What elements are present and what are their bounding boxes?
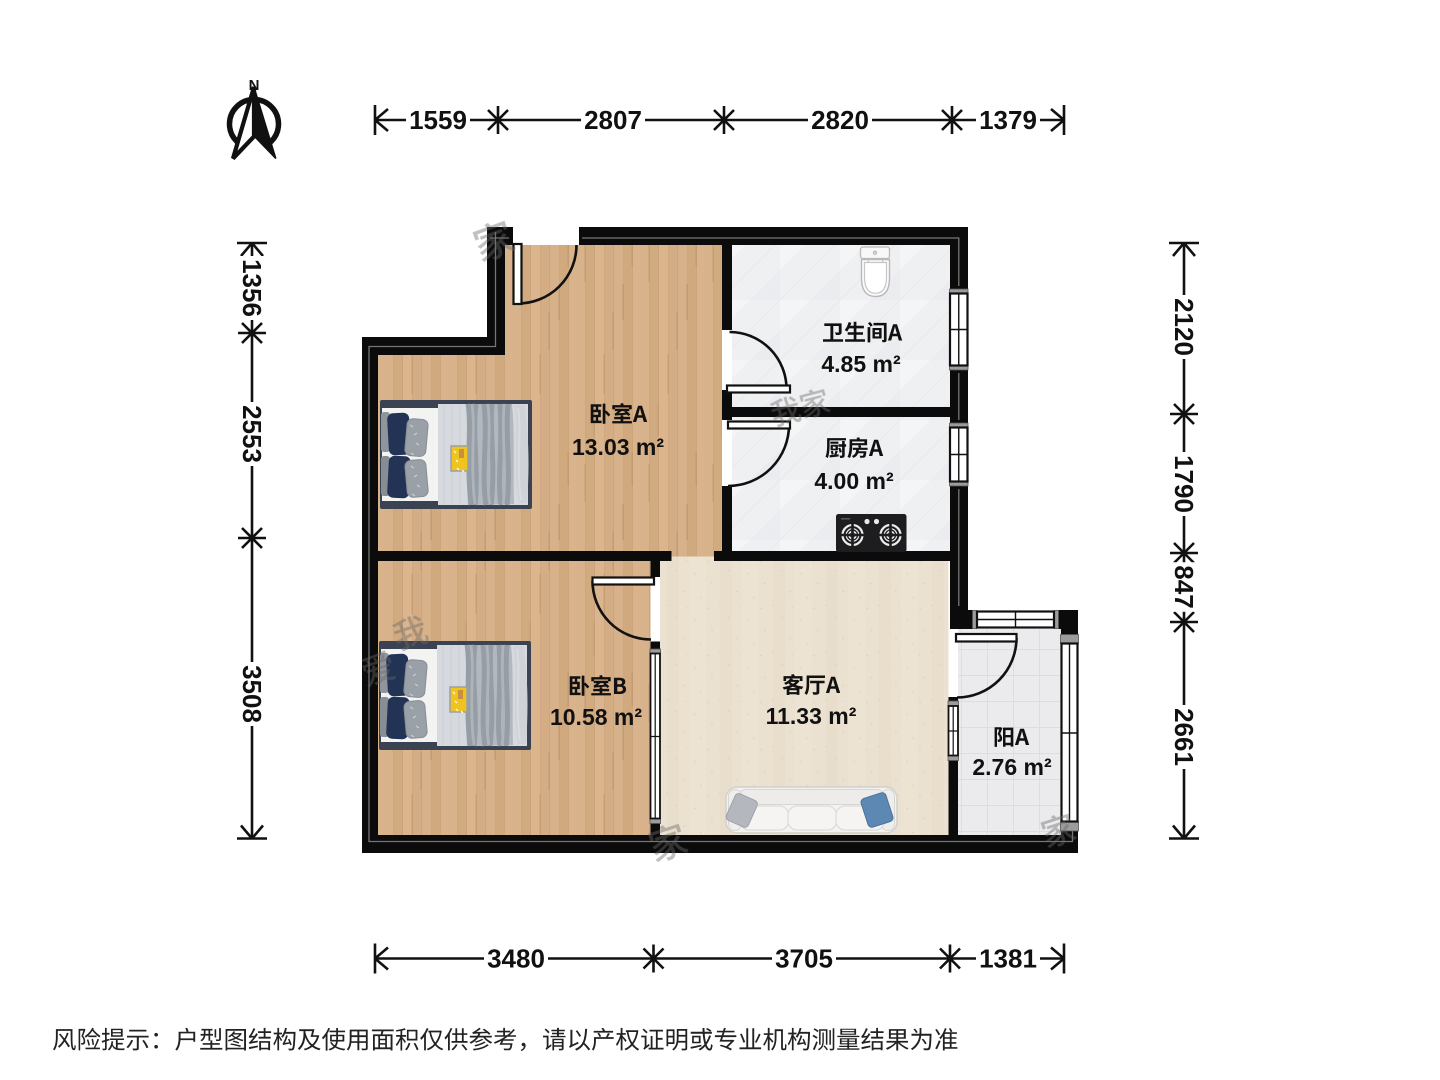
svg-text:1790: 1790 bbox=[1169, 455, 1199, 513]
svg-text:4.00 m²: 4.00 m² bbox=[814, 468, 894, 494]
svg-text:4.85 m²: 4.85 m² bbox=[821, 351, 901, 377]
svg-text:11.33 m²: 11.33 m² bbox=[766, 703, 857, 729]
svg-text:3480: 3480 bbox=[487, 944, 545, 974]
svg-text:2807: 2807 bbox=[584, 105, 642, 135]
svg-text:1356: 1356 bbox=[237, 259, 267, 317]
svg-text:13.03 m²: 13.03 m² bbox=[572, 434, 664, 460]
svg-text:2553: 2553 bbox=[237, 405, 267, 463]
svg-text:2.76 m²: 2.76 m² bbox=[972, 754, 1052, 780]
svg-text:2661: 2661 bbox=[1169, 708, 1199, 766]
svg-text:3508: 3508 bbox=[237, 665, 267, 723]
svg-text:10.58 m²: 10.58 m² bbox=[550, 704, 642, 730]
svg-text:1559: 1559 bbox=[409, 105, 467, 135]
svg-text:2820: 2820 bbox=[811, 105, 869, 135]
svg-text:3705: 3705 bbox=[775, 944, 833, 974]
svg-text:2120: 2120 bbox=[1169, 298, 1199, 356]
svg-text:1381: 1381 bbox=[979, 944, 1037, 974]
svg-text:1379: 1379 bbox=[979, 105, 1037, 135]
svg-text:847: 847 bbox=[1169, 565, 1199, 608]
